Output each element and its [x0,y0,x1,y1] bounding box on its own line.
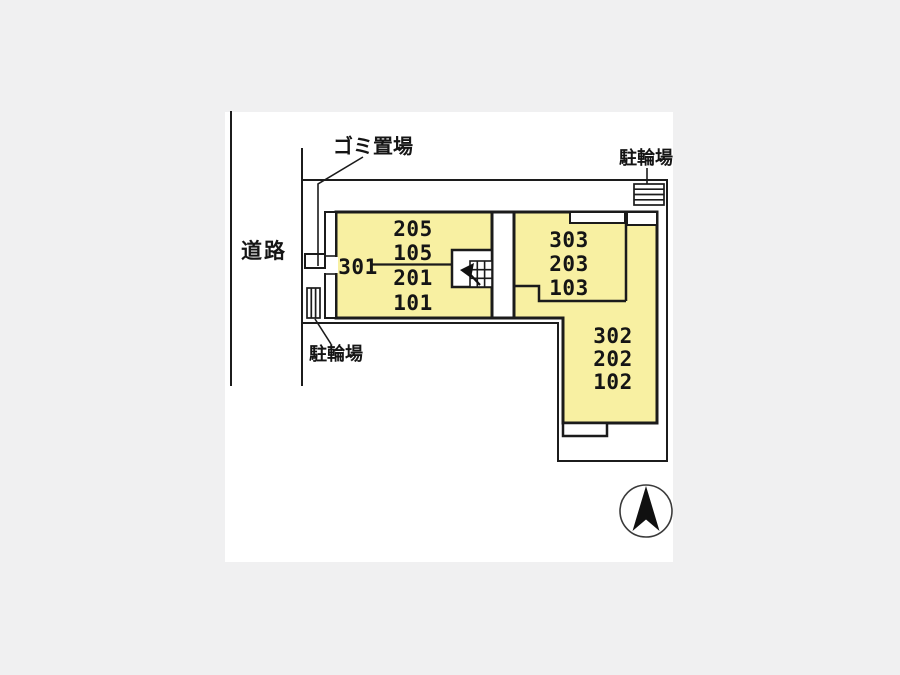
right-block-top-notch-b [627,212,657,225]
unit-label-101: 101 [393,291,432,315]
unit-label-202: 202 [593,347,632,371]
road-label: 道路 [241,239,287,263]
unit-label-303: 303 [549,228,588,252]
site-plan-image: 301 205 105 201 101 303 203 103 302 202 … [0,0,900,675]
unit-label-301: 301 [338,255,377,279]
unit-label-203: 203 [549,252,588,276]
unit-label-302: 302 [593,324,632,348]
bicycle-parking-left-label: 駐輪場 [309,343,363,364]
bicycle-rack-right [634,184,664,205]
bicycle-parking-right-label: 駐輪場 [619,147,673,168]
unit-label-201: 201 [393,266,432,290]
right-block-bottom-notch [563,423,607,436]
garbage-area-label: ゴミ置場 [333,134,413,158]
unit-label-105: 105 [393,241,432,265]
right-block-top-notch-a [570,212,625,223]
unit-label-103: 103 [549,276,588,300]
bicycle-rack-left [307,288,320,318]
garbage-box [305,254,325,268]
site-plan-svg: 301 205 105 201 101 303 203 103 302 202 … [0,0,900,675]
unit-label-102: 102 [593,370,632,394]
unit-label-205: 205 [393,217,432,241]
